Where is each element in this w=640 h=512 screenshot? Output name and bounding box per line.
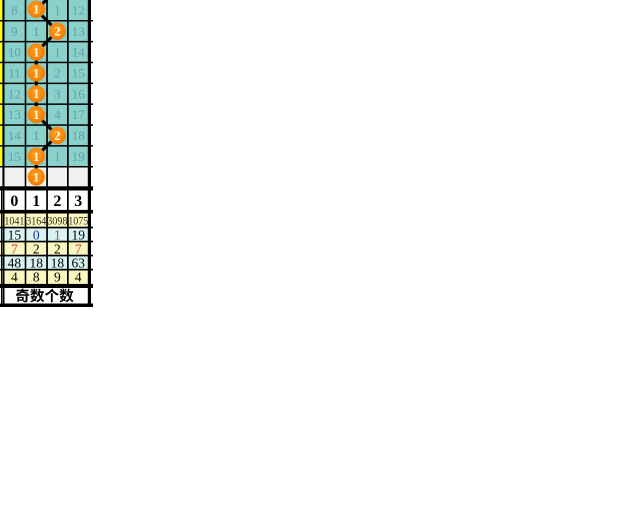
- svg-text:18: 18: [72, 128, 85, 143]
- svg-text:4: 4: [54, 107, 61, 122]
- svg-text:12: 12: [8, 86, 21, 101]
- svg-text:1: 1: [32, 193, 40, 210]
- svg-text:13: 13: [8, 107, 21, 122]
- svg-text:15: 15: [8, 227, 22, 242]
- svg-text:1: 1: [33, 24, 40, 39]
- svg-text:1: 1: [54, 227, 61, 242]
- svg-text:2: 2: [53, 193, 61, 210]
- svg-text:11: 11: [8, 66, 21, 81]
- svg-text:9: 9: [11, 24, 18, 39]
- svg-text:3: 3: [54, 86, 61, 101]
- svg-text:4: 4: [11, 270, 18, 285]
- svg-text:3098: 3098: [47, 214, 67, 228]
- svg-text:14: 14: [8, 128, 22, 143]
- svg-text:19: 19: [72, 227, 86, 242]
- svg-text:12: 12: [72, 2, 85, 17]
- svg-text:63: 63: [72, 255, 86, 270]
- svg-text:18: 18: [51, 255, 65, 270]
- svg-text:1075: 1075: [68, 214, 88, 228]
- svg-text:15: 15: [8, 149, 21, 164]
- svg-text:2: 2: [54, 66, 61, 81]
- svg-text:1: 1: [33, 107, 40, 122]
- svg-text:8: 8: [33, 270, 40, 285]
- svg-text:0: 0: [10, 193, 18, 210]
- svg-text:1: 1: [33, 45, 40, 60]
- svg-text:3164: 3164: [26, 214, 46, 228]
- svg-text:2: 2: [33, 241, 40, 256]
- svg-text:2: 2: [54, 24, 61, 39]
- svg-text:1: 1: [54, 2, 61, 17]
- svg-text:1041: 1041: [4, 214, 24, 228]
- svg-text:17: 17: [72, 107, 86, 122]
- svg-text:1: 1: [33, 86, 40, 101]
- svg-text:48: 48: [8, 255, 22, 270]
- svg-text:15: 15: [72, 66, 85, 81]
- svg-text:18: 18: [30, 255, 44, 270]
- svg-text:19: 19: [72, 149, 85, 164]
- svg-text:0: 0: [33, 227, 40, 242]
- svg-text:1: 1: [54, 149, 61, 164]
- svg-text:1: 1: [54, 45, 61, 60]
- svg-text:1: 1: [33, 128, 40, 143]
- svg-text:1: 1: [33, 2, 40, 17]
- svg-text:16: 16: [72, 86, 86, 101]
- svg-text:2: 2: [54, 128, 61, 143]
- svg-text:13: 13: [72, 24, 85, 39]
- svg-text:10: 10: [8, 45, 21, 60]
- svg-text:3: 3: [74, 193, 82, 210]
- svg-text:7: 7: [11, 241, 18, 256]
- svg-text:4: 4: [75, 270, 82, 285]
- svg-text:7: 7: [75, 241, 82, 256]
- svg-text:8: 8: [11, 2, 18, 17]
- svg-text:1: 1: [33, 169, 40, 184]
- svg-text:2: 2: [54, 241, 61, 256]
- svg-text:9: 9: [54, 270, 61, 285]
- svg-text:1: 1: [33, 149, 40, 164]
- svg-text:1: 1: [33, 65, 40, 80]
- svg-text:14: 14: [72, 45, 86, 60]
